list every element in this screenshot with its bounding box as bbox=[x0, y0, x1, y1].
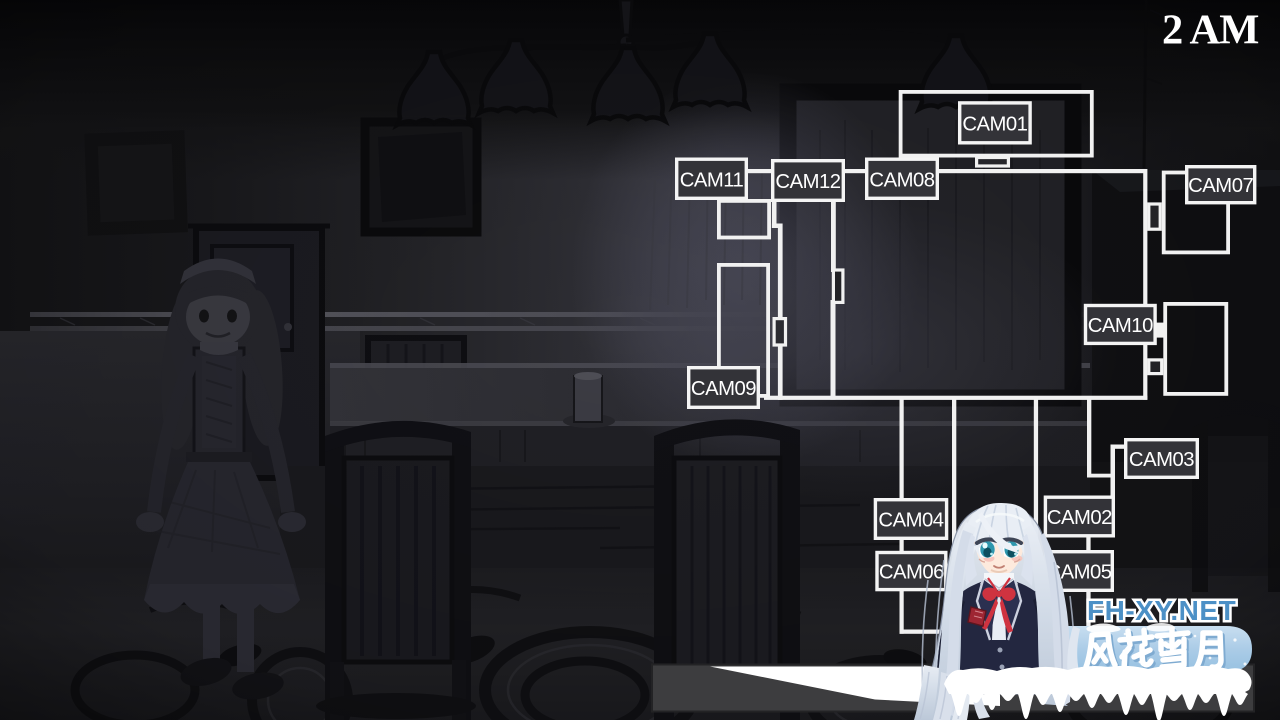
svg-text:CAM10: CAM10 bbox=[1088, 315, 1153, 337]
svg-text:2 AM: 2 AM bbox=[1162, 7, 1258, 54]
svg-text:CAM09: CAM09 bbox=[691, 378, 756, 400]
svg-text:FH-XY.NET: FH-XY.NET bbox=[1087, 595, 1236, 626]
svg-text:CAM02: CAM02 bbox=[1047, 507, 1112, 529]
svg-text:CAM11: CAM11 bbox=[680, 169, 744, 191]
svg-text:CAM03: CAM03 bbox=[1129, 449, 1194, 471]
svg-text:CAM01: CAM01 bbox=[962, 113, 1027, 135]
svg-text:CAM04: CAM04 bbox=[878, 510, 943, 532]
svg-text:CAM06: CAM06 bbox=[879, 562, 944, 584]
svg-text:CAM12: CAM12 bbox=[775, 171, 840, 193]
svg-text:CAM08: CAM08 bbox=[869, 169, 934, 191]
svg-text:CAM07: CAM07 bbox=[1188, 175, 1253, 197]
